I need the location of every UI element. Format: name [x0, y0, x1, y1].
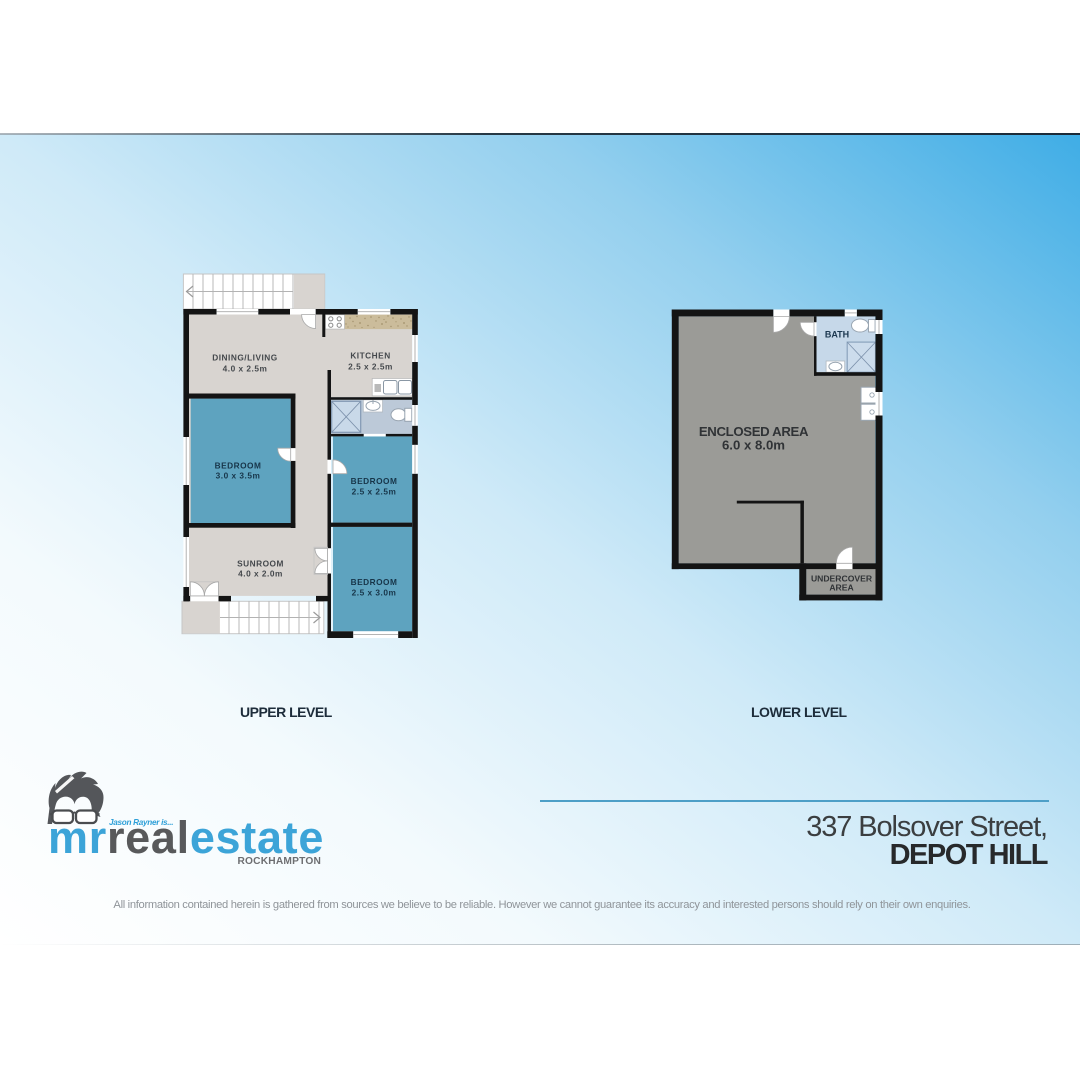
svg-text:KITCHEN: KITCHEN — [350, 350, 390, 360]
svg-text:2.5 x 2.5m: 2.5 x 2.5m — [348, 362, 393, 372]
svg-text:BEDROOM: BEDROOM — [215, 460, 262, 470]
svg-text:4.0 x 2.5m: 4.0 x 2.5m — [223, 364, 268, 374]
svg-text:BEDROOM: BEDROOM — [351, 577, 398, 587]
svg-text:6.0 x 8.0m: 6.0 x 8.0m — [722, 438, 785, 453]
svg-text:BEDROOM: BEDROOM — [351, 476, 398, 486]
svg-text:SUNROOM: SUNROOM — [237, 558, 284, 568]
svg-text:3.0 x 3.5m: 3.0 x 3.5m — [216, 471, 261, 481]
svg-text:DINING/LIVING: DINING/LIVING — [212, 352, 278, 362]
svg-text:BATH: BATH — [825, 330, 849, 340]
svg-text:AREA: AREA — [829, 583, 853, 593]
svg-text:4.0 x 2.0m: 4.0 x 2.0m — [238, 568, 283, 578]
svg-text:2.5 x 3.0m: 2.5 x 3.0m — [352, 588, 397, 598]
svg-text:2.5 x 2.5m: 2.5 x 2.5m — [352, 487, 397, 497]
